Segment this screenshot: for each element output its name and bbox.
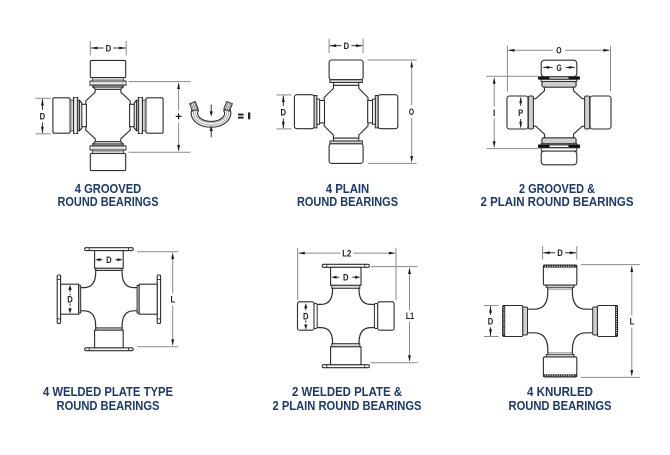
svg-text:D: D: [488, 316, 494, 326]
svg-text:I: I: [493, 108, 495, 118]
svg-text:2 WELDED PLATE &: 2 WELDED PLATE &: [292, 384, 402, 399]
svg-text:D: D: [303, 311, 309, 321]
svg-text:L2: L2: [342, 249, 351, 259]
svg-text:4 WELDED PLATE TYPE: 4 WELDED PLATE TYPE: [43, 384, 173, 399]
svg-text:L: L: [630, 317, 635, 327]
svg-text:G: G: [556, 63, 561, 73]
svg-text:D: D: [343, 273, 349, 283]
svg-text:L1: L1: [406, 311, 414, 321]
svg-text:D: D: [67, 295, 73, 305]
svg-text:O: O: [409, 107, 414, 117]
svg-text:ROUND BEARINGS: ROUND BEARINGS: [297, 194, 398, 209]
svg-text:4 KNURLED: 4 KNURLED: [527, 384, 593, 399]
svg-text:2 PLAIN ROUND BEARINGS: 2 PLAIN ROUND BEARINGS: [273, 398, 422, 413]
svg-text:D: D: [557, 248, 563, 258]
svg-text:D: D: [40, 111, 46, 121]
svg-text:D: D: [106, 255, 112, 265]
svg-text:2 PLAIN ROUND BEARINGS: 2 PLAIN ROUND BEARINGS: [481, 194, 634, 209]
svg-text:D: D: [106, 43, 112, 53]
svg-text:ROUND BEARINGS: ROUND BEARINGS: [57, 398, 160, 413]
svg-text:ROUND BEARINGS: ROUND BEARINGS: [509, 398, 612, 413]
svg-text:ROUND BEARINGS: ROUND BEARINGS: [58, 194, 159, 209]
svg-text:D: D: [281, 108, 287, 118]
svg-text:P: P: [518, 108, 523, 118]
svg-text:D: D: [344, 41, 350, 51]
svg-text:L: L: [171, 295, 176, 305]
svg-text:O: O: [556, 46, 561, 56]
